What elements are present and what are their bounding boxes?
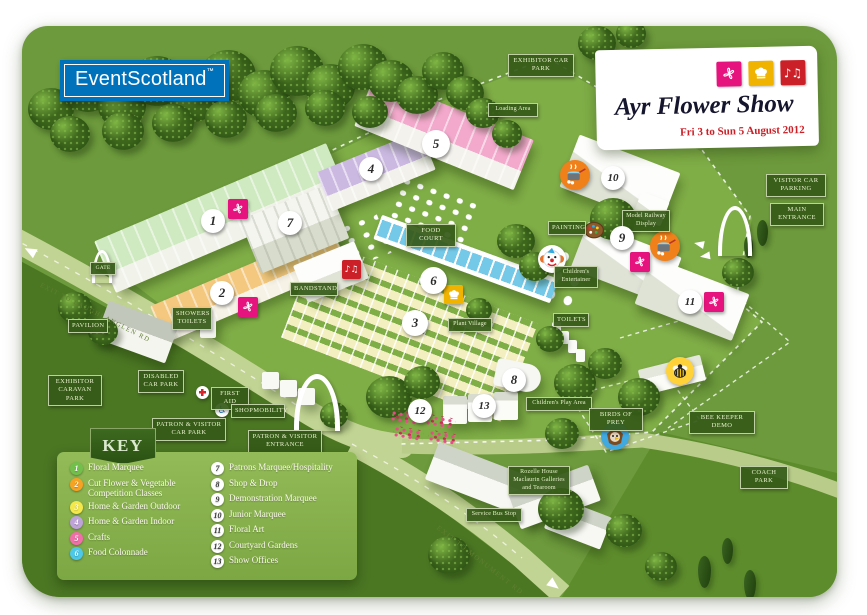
map-marker-13: 13: [472, 394, 496, 418]
key-number-badge: 10: [211, 509, 224, 522]
tree-icon: [102, 112, 144, 150]
key-item: 9Demonstration Marquee: [211, 493, 353, 506]
map-marker-8: 8: [502, 368, 526, 392]
key-number-badge: 7: [211, 462, 224, 475]
map-marker-12: 12: [408, 399, 432, 423]
label-painting: PAINTING: [548, 221, 586, 235]
key-number-badge: 3: [70, 501, 83, 514]
flower-icon: [716, 61, 742, 87]
key-column-1: 1Floral Marquee 2Cut Flower & Vegetable …: [70, 462, 206, 563]
painting-palette-icon: [583, 218, 605, 240]
key-item: 1Floral Marquee: [70, 462, 206, 475]
key-panel: KEY 1Floral Marquee 2Cut Flower & Vegeta…: [57, 452, 357, 580]
trademark-symbol: ™: [207, 68, 214, 75]
key-number-badge: 4: [70, 516, 83, 529]
key-item: 5Crafts: [70, 532, 206, 545]
key-item: 2Cut Flower & Vegetable Competition Clas…: [70, 478, 206, 499]
key-item: 8Shop & Drop: [211, 478, 353, 491]
key-item: 3Home & Garden Outdoor: [70, 501, 206, 514]
eventscotland-logo: EventScotland™: [60, 60, 229, 101]
cypress-tree-icon: [744, 570, 756, 597]
key-item-label: Junior Marquee: [229, 509, 286, 519]
key-item-label: Shop & Drop: [229, 478, 278, 488]
label-coach-park: COACH PARK: [740, 466, 788, 489]
first-aid-cross-icon: [196, 386, 209, 399]
key-column-2: 7Patrons Marquee/Hospitality 8Shop & Dro…: [211, 462, 353, 571]
label-main-entrance: MAIN ENTRANCE: [770, 203, 824, 226]
flower-icon: [704, 292, 724, 312]
label-disabled-car-park: DISABLED CAR PARK: [138, 370, 184, 393]
label-bee-keeper-demo: BEE KEEPER DEMO: [689, 411, 755, 434]
key-item-label: Demonstration Marquee: [229, 493, 317, 503]
toilet-cubicle: [576, 349, 585, 362]
tree-icon: [205, 100, 247, 138]
map-marker-5: 5: [422, 130, 450, 158]
label-rozelle-house: Rozelle House Maclaurin Galleries and Te…: [508, 466, 570, 495]
tree-icon: [152, 104, 194, 142]
key-number-badge: 11: [211, 524, 224, 537]
map-marker-6: 6: [420, 267, 447, 294]
tree-icon: [588, 348, 622, 379]
flower-icon: [630, 252, 650, 272]
key-item-label: Patrons Marquee/Hospitality: [229, 462, 333, 472]
bee-icon: [666, 357, 694, 385]
tree-icon: [50, 116, 90, 152]
ayr-flower-show-map: 1 2 3 4 5 6 7 8 9 10 11 12 13 ♪♫ ♿: [0, 0, 867, 615]
label-loading-area: Loading Area: [488, 103, 538, 117]
eventscotland-logo-text: EventScotland™: [64, 64, 225, 97]
key-item: 4Home & Garden Indoor: [70, 516, 206, 529]
key-item-label: Food Colonnade: [88, 547, 148, 557]
label-showers-toilets: SHOWERS TOILETS: [172, 307, 212, 330]
map-marker-2: 2: [210, 281, 234, 305]
key-number-badge: 12: [211, 540, 224, 553]
kiosk-cube: [280, 380, 297, 397]
key-title: KEY: [90, 428, 156, 464]
tree-icon: [645, 552, 677, 581]
key-item: 11Floral Art: [211, 524, 353, 537]
label-bandstand: BANDSTAND: [290, 282, 338, 296]
key-item: 12Courtyard Gardens: [211, 540, 353, 553]
label-birds-of-prey: BIRDS OF PREY: [589, 408, 643, 431]
key-number-badge: 5: [70, 532, 83, 545]
map-marker-1: 1: [201, 209, 225, 233]
key-item-label: Floral Art: [229, 524, 264, 534]
entrance-arrow: [699, 251, 710, 260]
key-item-label: Crafts: [88, 532, 110, 542]
label-service-bus-stop: Service Bus Stop: [466, 508, 522, 522]
music-notes-icon: ♪♫: [780, 60, 806, 86]
key-item-label: Courtyard Gardens: [229, 540, 298, 550]
label-toilets: TOILETS: [553, 313, 589, 327]
map-marker-11: 11: [678, 290, 702, 314]
tree-icon: [352, 96, 388, 128]
label-childrens-play-area: Children's Play Area: [526, 397, 592, 411]
tree-icon: [606, 514, 642, 547]
label-exhibitor-car-park: EXHIBITOR CAR PARK: [508, 54, 574, 77]
tree-icon: [305, 90, 345, 126]
map-marker-9: 9: [610, 226, 634, 250]
label-shopmobility: SHOPMOBILITY: [231, 404, 285, 418]
key-number-badge: 6: [70, 547, 83, 560]
label-food-court: FOOD COURT: [406, 224, 456, 247]
map-marker-3: 3: [402, 310, 428, 336]
label-pavilion: PAVILION: [68, 319, 108, 333]
label-exhibitor-caravan-park: EXHIBITOR CARAVAN PARK: [48, 375, 102, 406]
flower-icon: [238, 297, 258, 317]
label-plant-village: Plant Village: [448, 318, 492, 332]
cooking-pot-icon: [560, 160, 590, 190]
key-number-badge: 1: [70, 462, 83, 475]
tree-icon: [255, 94, 297, 132]
flower-icon: [228, 199, 248, 219]
key-number-badge: 8: [211, 478, 224, 491]
key-number-badge: 2: [70, 478, 83, 491]
key-number-badge: 13: [211, 555, 224, 568]
tree-icon: [545, 418, 579, 449]
key-number-badge: 9: [211, 493, 224, 506]
building-show-office: [494, 392, 518, 420]
key-item-label: Home & Garden Outdoor: [88, 501, 180, 511]
label-gate: GATE: [90, 262, 116, 275]
show-title: Ayr Flower Show: [596, 90, 813, 123]
cooking-pot-icon: [650, 231, 680, 261]
map-marker-4: 4: [359, 157, 383, 181]
banner-icons: ♪♫: [716, 60, 806, 87]
chef-hat-icon: [748, 61, 774, 87]
key-item-label: Show Offices: [229, 555, 278, 565]
key-item: 7Patrons Marquee/Hospitality: [211, 462, 353, 475]
chef-hat-icon: [444, 285, 463, 304]
map-marker-7: 7: [278, 211, 302, 235]
key-item-label: Home & Garden Indoor: [88, 516, 174, 526]
show-dates: Fri 3 to Sun 5 August 2012: [680, 124, 805, 139]
key-item: 13Show Offices: [211, 555, 353, 568]
title-banner: ♪♫ Ayr Flower Show Fri 3 to Sun 5 August…: [595, 46, 819, 151]
tree-icon: [492, 120, 522, 148]
label-patron-visitor-car-park: PATRON & VISITOR CAR PARK: [152, 418, 226, 441]
label-visitor-car-parking: VISITOR CAR PARKING: [766, 174, 826, 197]
label-childrens-entertainer: Children's Entertainer: [554, 266, 598, 288]
map-canvas: 1 2 3 4 5 6 7 8 9 10 11 12 13 ♪♫ ♿: [22, 26, 837, 597]
key-item: 10Junior Marquee: [211, 509, 353, 522]
tree-icon: [404, 366, 440, 399]
tree-icon: [722, 258, 754, 287]
key-item-label: Floral Marquee: [88, 462, 144, 472]
map-marker-10: 10: [601, 166, 625, 190]
label-patron-visitor-entrance: PATRON & VISITOR ENTRANCE: [248, 430, 322, 453]
key-item: 6Food Colonnade: [70, 547, 206, 560]
key-item-label: Cut Flower & Vegetable Competition Class…: [88, 478, 206, 499]
music-notes-icon: ♪♫: [342, 260, 361, 279]
kiosk-cube: [262, 372, 279, 389]
tree-icon: [536, 326, 564, 352]
